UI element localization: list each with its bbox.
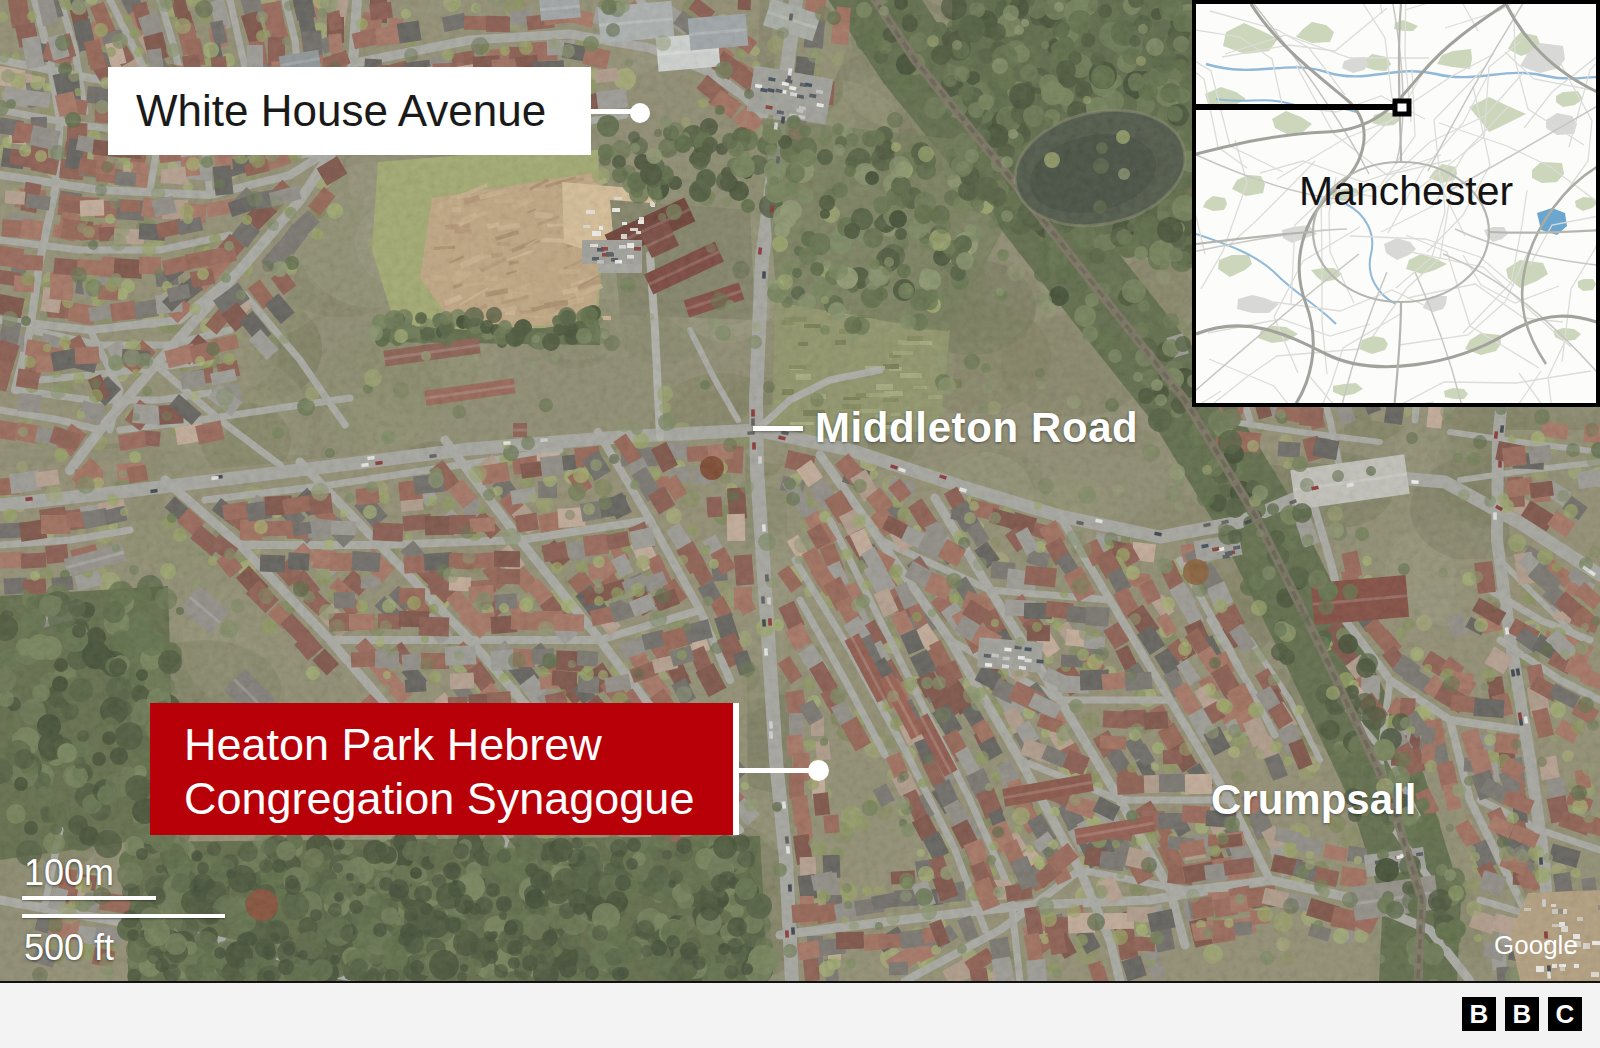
svg-text:Manchester: Manchester — [1299, 168, 1513, 214]
